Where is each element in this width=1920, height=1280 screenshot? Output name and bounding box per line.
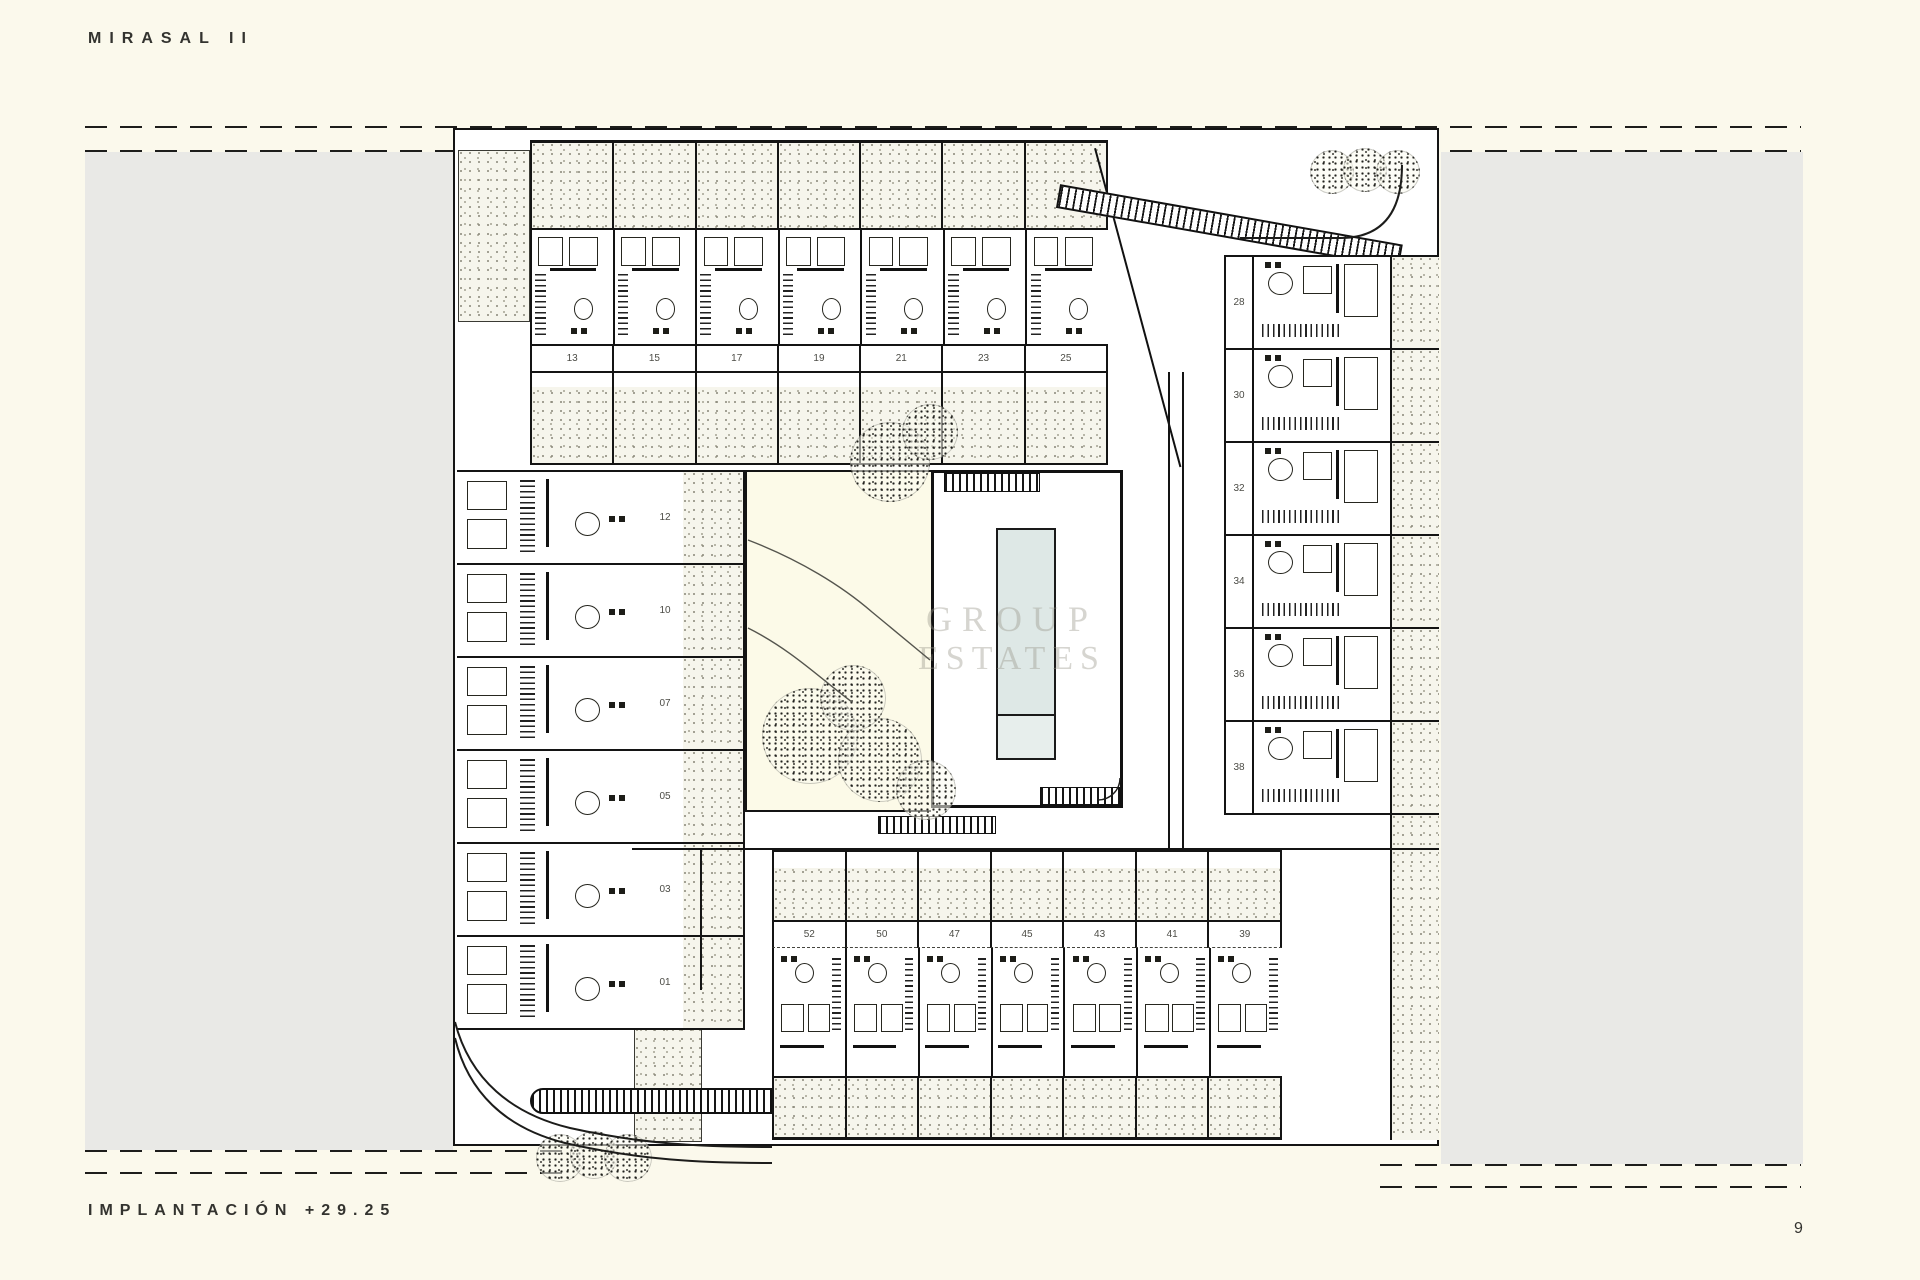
patio-cell [772,1078,845,1137]
house-unit-plan [457,937,647,1030]
unit-number-label: 12 [647,472,683,565]
patio-cell [917,1078,990,1137]
tree [820,665,886,731]
unit-number-label: 15 [612,346,694,371]
terrace-cell [917,852,990,920]
house-unit-plan [530,230,613,344]
house-unit-plan [613,230,696,344]
top-row-patios [530,140,1108,228]
patio-cell [1390,722,1439,815]
entry-planting-patch [458,150,530,322]
brand-watermark: GROUP ESTATES [862,598,1162,678]
patio-cell [683,658,743,751]
terrace-cell [612,373,694,463]
house-unit-plan [991,948,1064,1076]
site-boundary-dashed-bottom-left-2 [85,1172,563,1174]
house-unit-plan [1252,722,1390,815]
unit-number-label: 39 [1207,922,1282,948]
unit-number-label: 25 [1024,346,1108,371]
tree [896,760,956,820]
site-boundary-dashed-bottom-left-1 [85,1150,563,1152]
right-column-unit-numbers: 283032343638 [1224,255,1252,815]
terrace-cell [772,852,845,920]
unit-number-label: 30 [1226,350,1252,443]
pool-entry-grate-bottom [1040,787,1120,805]
house-unit-plan [1136,948,1209,1076]
house-unit-plan [918,948,991,1076]
top-row-rear-terraces [530,371,1108,465]
patio-cell [941,143,1023,228]
bottom-row-terraces [772,850,1282,920]
house-unit-plan [1025,230,1108,344]
watermark-line-2: ESTATES [862,640,1162,678]
unit-number-label: 32 [1226,443,1252,536]
house-unit-plan [1252,443,1390,536]
terrace-cell [777,373,859,463]
unit-number-label: 05 [647,751,683,844]
sheet-title: MIRASAL II [88,30,254,48]
unit-number-label: 17 [695,346,777,371]
house-unit-plan [695,230,778,344]
house-unit-plan [943,230,1026,344]
terrace-cell [1135,852,1208,920]
site-boundary-dashed-bottom-right-1 [1380,1164,1801,1166]
patio-cell [530,143,612,228]
patio-cell [859,143,941,228]
left-column-interiors [457,470,647,1030]
watermark-line-1: GROUP [862,598,1162,640]
ground-panel-left [85,152,453,1150]
patio-cell [683,565,743,658]
patio-cell [683,844,743,937]
house-unit-plan [772,948,845,1076]
unit-number-label: 01 [647,937,683,1030]
unit-number-label: 41 [1135,922,1208,948]
patio-cell [1390,350,1439,443]
patio-cell [1390,443,1439,536]
house-unit-plan [457,844,647,937]
left-column-unit-numbers: 121007050301 [647,470,683,1030]
house-unit-plan [1063,948,1136,1076]
bottom-row-interiors [772,948,1282,1078]
house-unit-plan [457,472,647,565]
house-unit-plan [1209,948,1282,1076]
house-unit-plan [845,948,918,1076]
house-unit-plan [1252,350,1390,443]
patio-cell [683,472,743,565]
house-unit-plan [457,565,647,658]
unit-number-label: 03 [647,844,683,937]
unit-number-label: 36 [1226,629,1252,722]
walkway-wall-line-2 [1182,372,1184,850]
walkway-wall-line-4 [700,850,702,990]
unit-number-label: 21 [859,346,941,371]
patio-cell [1390,257,1439,350]
unit-number-label: 07 [647,658,683,751]
page-number: 9 [1794,1220,1803,1238]
patio-cell [777,143,859,228]
left-column-patios [683,470,745,1030]
patio-cell [683,751,743,844]
walkway-grate-bottom [878,816,996,834]
right-column-patios [1390,255,1439,815]
terrace-cell [845,852,918,920]
patio-cell [683,937,743,1030]
top-row-interiors [530,228,1108,346]
unit-number-label: 50 [845,922,918,948]
patio-cell [612,143,694,228]
access-ramp-hatch [530,1088,772,1114]
unit-number-label: 23 [941,346,1023,371]
tree [902,404,958,460]
drawing-sheet: MIRASAL II 13151719212325 [0,0,1920,1280]
patio-cell [695,143,777,228]
site-boundary-dashed-bottom-right-2 [1380,1186,1801,1188]
top-row-unit-numbers: 13151719212325 [530,346,1108,371]
terrace-cell [990,852,1063,920]
terrace-cell [1024,373,1108,463]
house-unit-plan [1252,257,1390,350]
unit-number-label: 34 [1226,536,1252,629]
patio-cell [1390,536,1439,629]
unit-number-label: 47 [917,922,990,948]
right-edge-planting-strip [1390,815,1439,1140]
ground-panel-right [1441,152,1803,1164]
tree [1376,150,1420,194]
unit-number-label: 19 [777,346,859,371]
unit-number-label: 10 [647,565,683,658]
house-unit-plan [778,230,861,344]
house-unit-plan [1252,629,1390,722]
house-unit-plan [457,658,647,751]
house-unit-plan [457,751,647,844]
drawing-caption: IMPLANTACIÓN +29.25 [88,1202,396,1220]
unit-number-label: 45 [990,922,1063,948]
patio-cell [1062,1078,1135,1137]
bottom-row-unit-numbers: 52504745434139 [772,920,1282,948]
house-unit-plan [860,230,943,344]
terrace-cell [695,373,777,463]
patio-cell [1135,1078,1208,1137]
pool-steps [998,714,1054,758]
terrace-cell [1062,852,1135,920]
patio-cell [1390,629,1439,722]
unit-number-label: 28 [1226,257,1252,350]
terrace-cell [1207,852,1282,920]
walkway-wall-line-1 [1168,372,1170,850]
bottom-row-patios [772,1078,1282,1140]
tree [604,1134,652,1182]
unit-number-label: 43 [1062,922,1135,948]
house-unit-plan [1252,536,1390,629]
right-column-interiors [1252,255,1390,815]
patio-cell [845,1078,918,1137]
unit-number-label: 38 [1226,722,1252,815]
unit-number-label: 13 [530,346,612,371]
patio-cell [990,1078,1063,1137]
pool-entry-grate-top [944,473,1040,492]
terrace-cell [530,373,612,463]
unit-number-label: 52 [772,922,845,948]
patio-cell [1207,1078,1282,1137]
